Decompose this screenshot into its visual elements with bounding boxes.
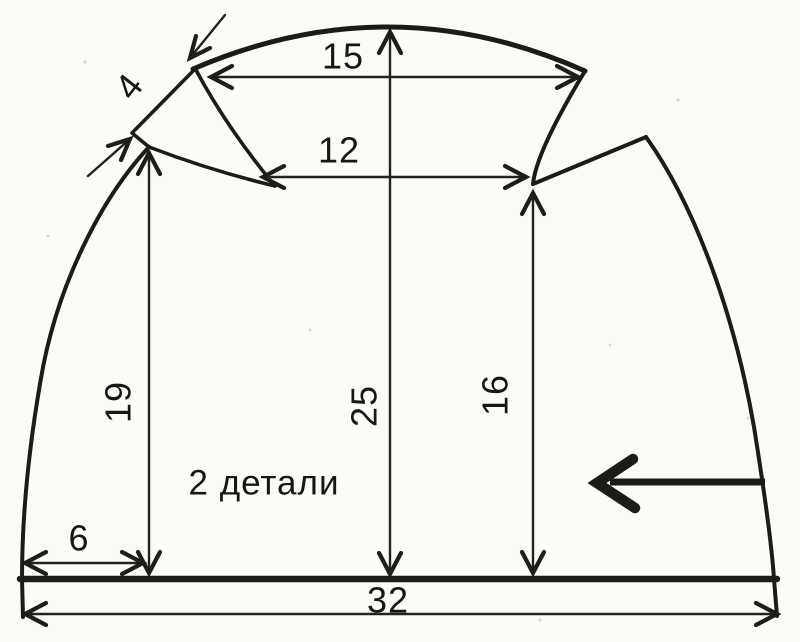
piece-count-note: 2 детали (189, 464, 340, 503)
dim-label-left-offset: 6 (68, 518, 89, 559)
right-side-edge (646, 137, 777, 616)
dim-label-crown-width: 15 (322, 36, 364, 77)
grain-arrow (597, 459, 765, 508)
cap-pattern-diagram: 15 12 4 19 25 16 6 32 2 детали (0, 0, 800, 642)
dimension-labels: 15 12 4 19 25 16 6 32 2 детали (68, 36, 515, 621)
scan-speckles (47, 60, 750, 621)
pattern-sheet: 15 12 4 19 25 16 6 32 2 детали (0, 0, 800, 642)
dart-left-edge (149, 147, 275, 186)
dim-label-dart-edge: 4 (106, 65, 151, 107)
dim-label-right-height: 16 (475, 374, 516, 416)
dim-label-bottom-width: 32 (367, 580, 409, 621)
pattern-outline (20, 27, 777, 617)
dim-label-left-height: 19 (98, 381, 139, 423)
right-notch-back-edge (533, 137, 646, 184)
dim-label-center-height: 25 (344, 385, 385, 427)
dim-label-dart-span: 12 (318, 130, 360, 171)
notch-edge (132, 68, 196, 147)
